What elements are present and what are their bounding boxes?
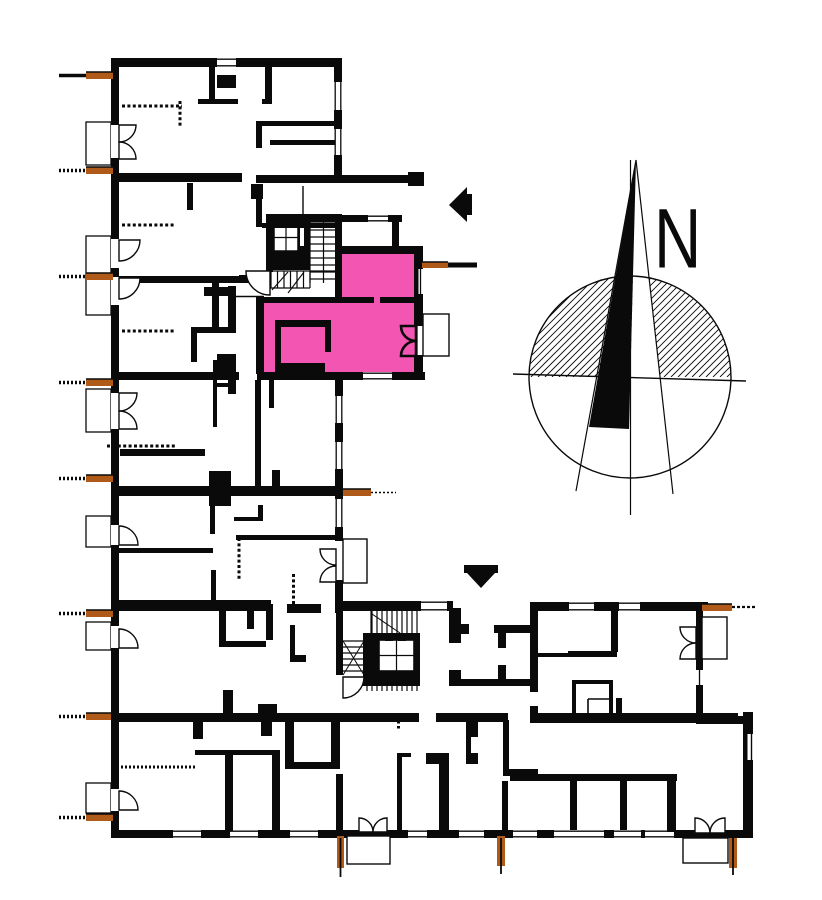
svg-text:N: N [654,192,701,286]
